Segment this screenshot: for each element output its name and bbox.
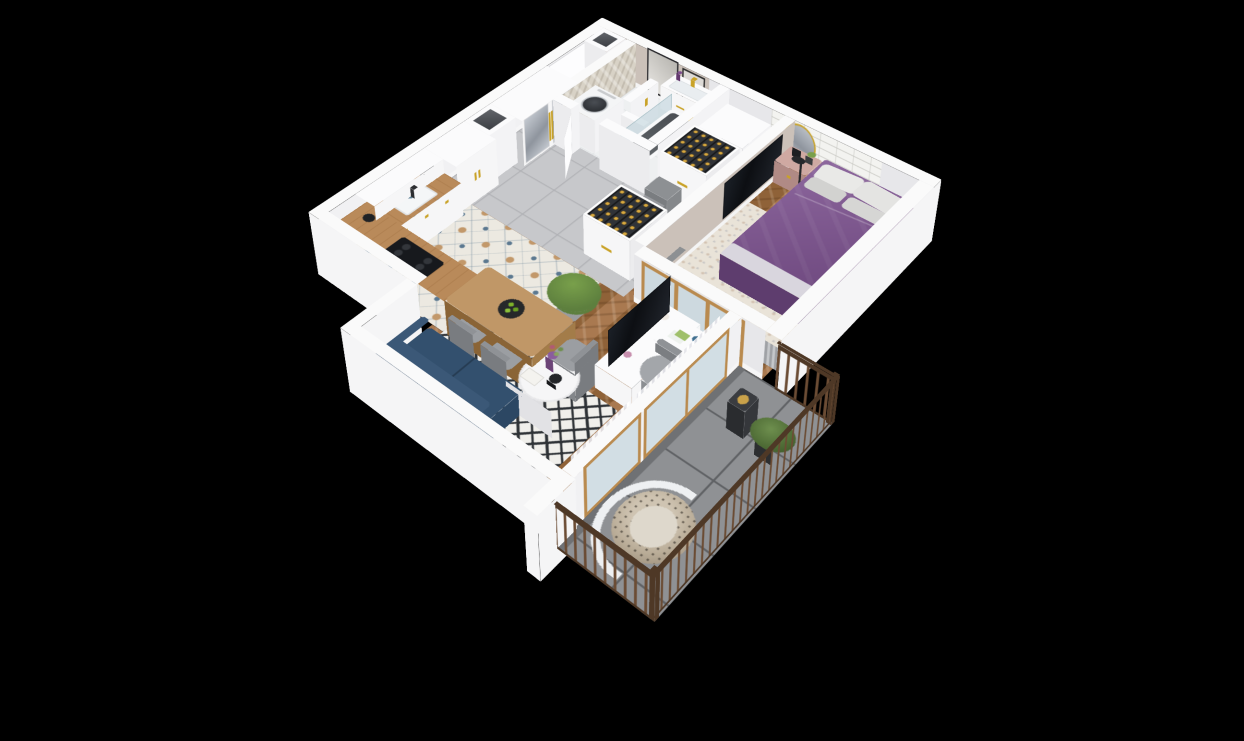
nightstand-knob [787, 175, 791, 179]
detail [445, 200, 449, 205]
render-canvas [25, 0, 1219, 741]
lantern-candle [735, 393, 751, 406]
side-face [571, 104, 580, 155]
detail [676, 105, 684, 111]
fruit-plate [492, 295, 530, 322]
cabinet-handle [475, 172, 477, 181]
cabinet-handle [479, 169, 481, 178]
camera-stage [25, 0, 1219, 741]
gold-flush-plate [645, 97, 648, 106]
detail [592, 32, 617, 47]
detail [601, 245, 611, 253]
apartment-floor-plan [224, 61, 1000, 653]
railing-post [649, 613, 659, 622]
detail [425, 214, 429, 219]
